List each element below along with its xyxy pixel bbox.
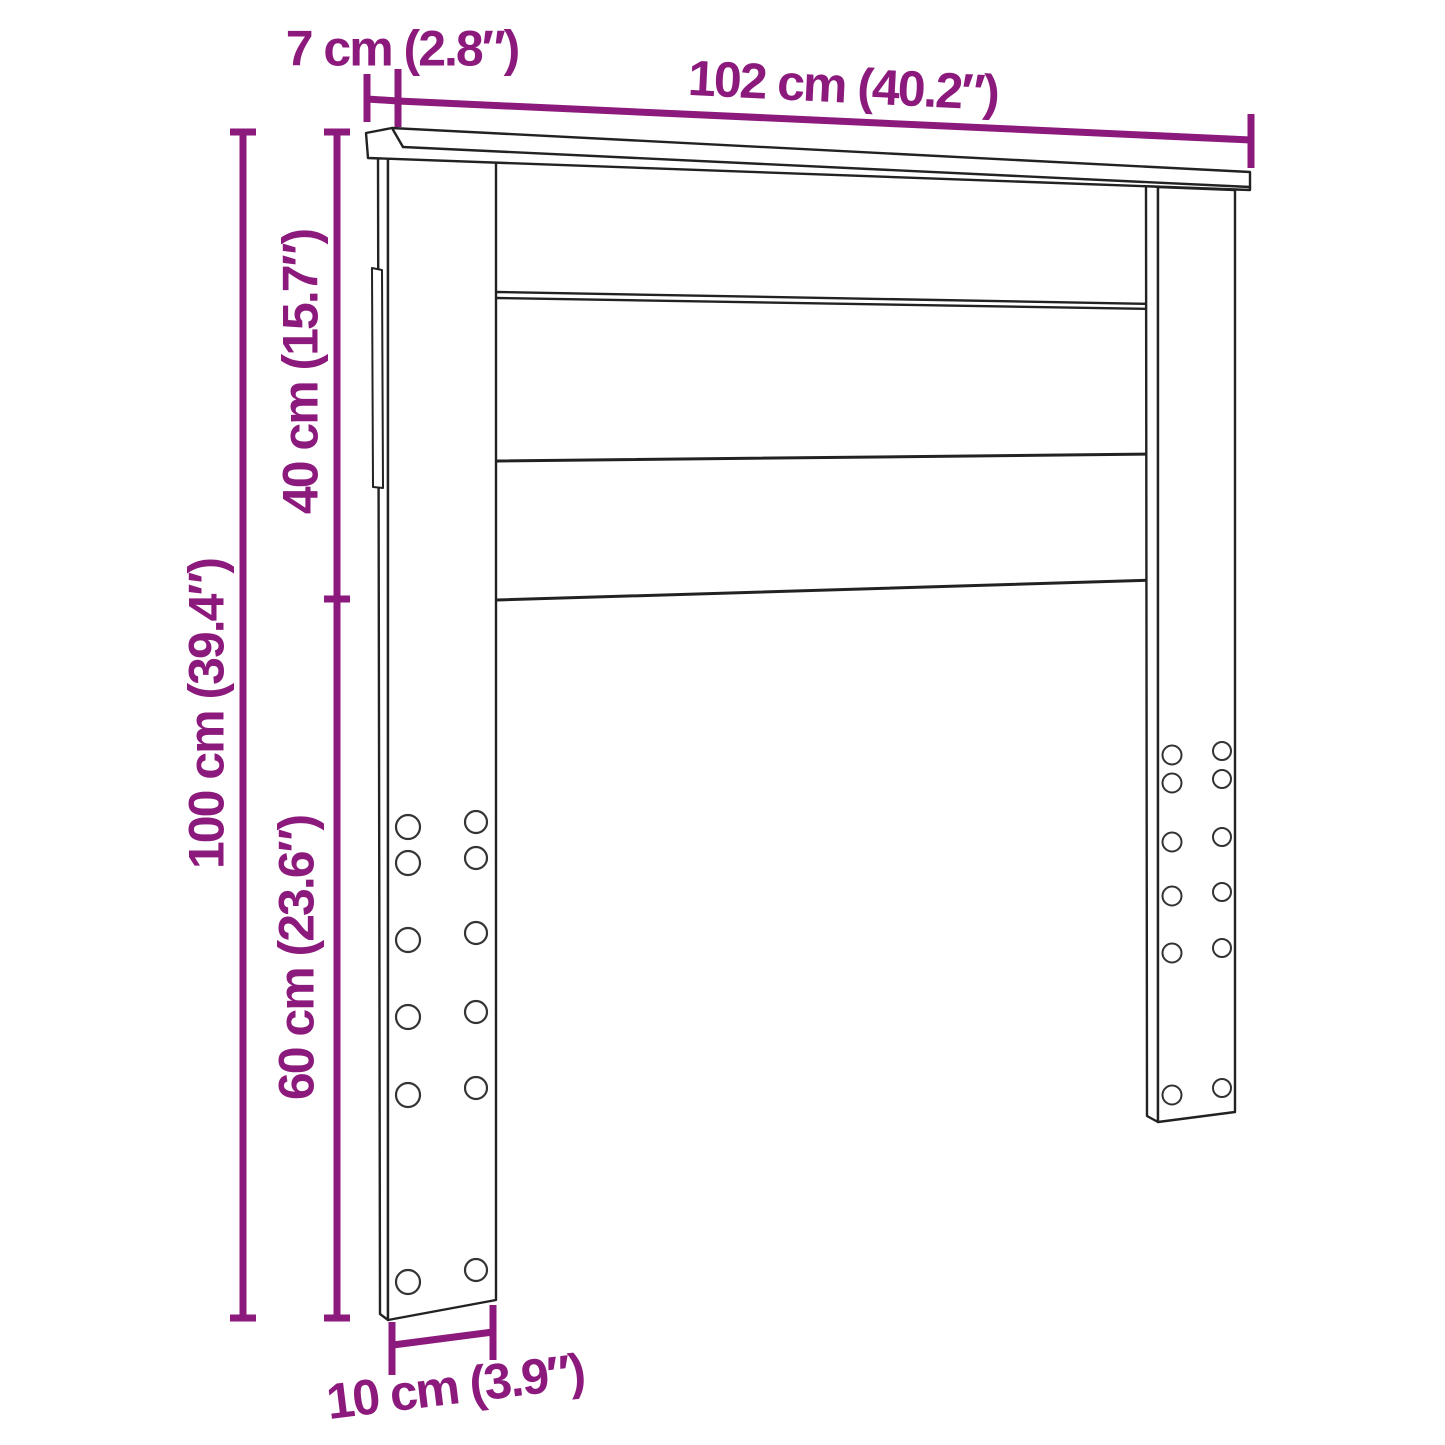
screw-hole — [1213, 883, 1231, 901]
dimension-label-top-depth: 7 cm (2.8″) — [286, 21, 519, 77]
screw-hole — [1163, 833, 1182, 852]
screw-hole — [1163, 774, 1182, 793]
screw-hole — [1163, 746, 1182, 765]
screw-hole — [396, 928, 420, 952]
left-leg — [378, 151, 496, 1320]
right-leg-front-face — [1158, 187, 1235, 1122]
screw-hole — [396, 1083, 420, 1107]
screw-hole — [465, 1001, 487, 1023]
screw-hole — [465, 922, 487, 944]
screw-hole — [1213, 939, 1231, 957]
dimension-label-panel-height: 40 cm (15.7″) — [273, 230, 329, 515]
diagram-page: 7 cm (2.8″) 102 cm (40.2″) 40 cm (15.7″)… — [0, 0, 1445, 1445]
screw-hole — [465, 1259, 487, 1281]
right-leg — [1146, 185, 1235, 1122]
screw-hole — [1163, 1086, 1182, 1105]
screw-hole — [1213, 828, 1231, 846]
screw-hole — [465, 847, 487, 869]
screw-hole — [1163, 944, 1182, 963]
screw-hole — [396, 851, 420, 875]
screw-hole — [1213, 1079, 1231, 1097]
screw-hole — [396, 1270, 420, 1294]
dimension-label-total-height: 100 cm (39.4″) — [179, 559, 235, 869]
screw-hole — [396, 815, 420, 839]
screw-hole — [465, 811, 487, 833]
headboard-dimension-diagram: 7 cm (2.8″) 102 cm (40.2″) 40 cm (15.7″)… — [0, 0, 1445, 1445]
dimension-label-leg-height: 60 cm (23.6″) — [269, 816, 325, 1101]
screw-hole — [396, 1005, 420, 1029]
left-leg-front-face — [388, 154, 496, 1320]
screw-hole — [1213, 742, 1231, 760]
screw-hole — [1163, 887, 1182, 906]
screw-hole — [465, 1077, 487, 1099]
right-leg-side-face — [1146, 185, 1158, 1122]
wall-mount-bracket — [372, 268, 383, 488]
screw-hole — [1213, 770, 1231, 788]
